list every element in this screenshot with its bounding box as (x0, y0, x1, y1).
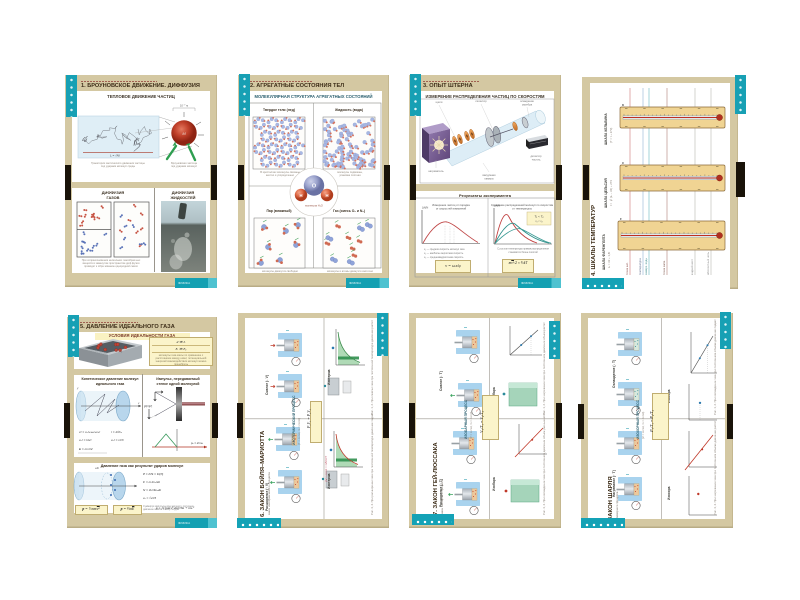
svg-text:от температуры: от температуры (512, 208, 532, 211)
svg-text:v₁ — средняя скорость молекул: v₁ — средняя скорость молекул газа (424, 248, 465, 251)
svg-text:v₃ — среднеквадратичная скорос: v₃ — среднеквадратичная скорость (424, 256, 464, 259)
svg-text:v Δt: v Δt (95, 466, 99, 470)
svg-text:C: C (622, 161, 625, 165)
svg-text:Измерение частиц от порядка: Измерение частиц от порядка (432, 203, 470, 207)
svg-text:O: O (312, 184, 317, 190)
svg-text:K: K (622, 103, 625, 107)
svg-text:F = m 2vₓ/Δt: F = m 2vₓ/Δt (143, 480, 160, 484)
svg-text:vₓ ≈ √v²/3: vₓ ≈ √v²/3 (143, 496, 156, 500)
svg-text:T₁ < T₂: T₁ < T₂ (534, 215, 544, 219)
svg-text:H: H (299, 193, 302, 198)
svg-text:P = F/S = F/(l²): P = F/S = F/(l²) (143, 472, 163, 476)
svg-text:v₂ — наиболее вероятная скорос: v₂ — наиболее вероятная скорость (424, 252, 464, 255)
svg-text:от скоростей измерений: от скоростей измерений (436, 207, 467, 211)
svg-text:Сравнение распределений молеку: Сравнение распределений молекул по скоро… (491, 203, 553, 207)
svg-text:v₁ < v₂: v₁ < v₂ (535, 219, 542, 223)
svg-text:ΔN/N: ΔN/N (422, 206, 428, 210)
svg-text:молекула H₂O: молекула H₂O (305, 204, 323, 208)
svg-text:N = ⅓ nSvₓΔt: N = ⅓ nSvₓΔt (143, 488, 161, 492)
svg-text:F: F (620, 217, 622, 221)
svg-text:становится более пологой: становится более пологой (508, 251, 538, 254)
svg-text:ΔN/N: ΔN/N (494, 204, 500, 208)
svg-text:H: H (325, 193, 328, 198)
